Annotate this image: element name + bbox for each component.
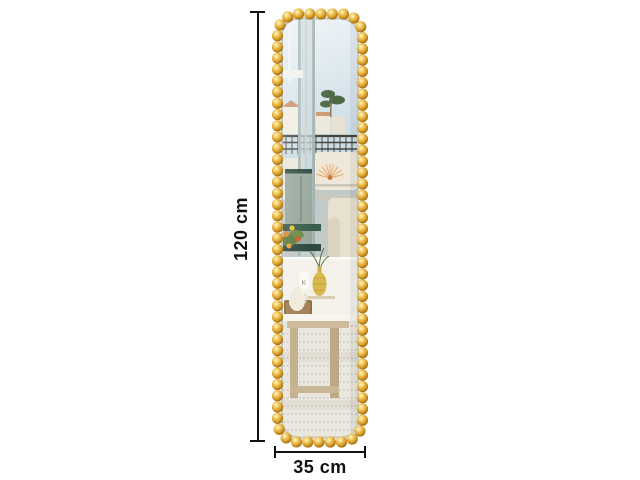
frame-bead: [357, 178, 368, 189]
frame-bead: [347, 433, 358, 444]
frame-bead: [272, 401, 283, 412]
frame-bead: [357, 392, 368, 403]
frame-bead: [272, 368, 283, 379]
frame-bead: [272, 266, 283, 277]
frame-bead: [272, 176, 283, 187]
frame-bead: [272, 154, 283, 165]
height-dimension-tick-top: [250, 11, 265, 13]
frame-bead: [272, 98, 283, 109]
frame-bead: [357, 302, 368, 313]
frame-bead: [272, 300, 283, 311]
frame-bead: [357, 77, 368, 88]
frame-bead: [272, 30, 283, 41]
frame-bead: [272, 86, 283, 97]
frame-bead: [357, 358, 368, 369]
frame-bead: [357, 190, 368, 201]
frame-bead: [274, 424, 285, 435]
frame-bead: [272, 233, 283, 244]
height-dimension-label: 120 cm: [230, 184, 252, 274]
frame-bead: [272, 188, 283, 199]
frame-bead: [272, 278, 283, 289]
frame-bead: [357, 100, 368, 111]
height-dimension-tick-bottom: [250, 440, 265, 442]
frame-bead: [357, 156, 368, 167]
frame-bead: [357, 336, 368, 347]
frame-bead: [272, 356, 283, 367]
frame-bead: [357, 347, 368, 358]
frame-bead: [272, 345, 283, 356]
frame-bead: [272, 334, 283, 345]
frame-bead: [272, 210, 283, 221]
frame-bead: [357, 313, 368, 324]
frame-bead: [281, 432, 292, 443]
frame-bead: [357, 133, 368, 144]
frame-bead: [338, 8, 349, 19]
frame-bead: [357, 111, 368, 122]
width-dimension-label: 35 cm: [275, 457, 365, 477]
frame-bead: [272, 165, 283, 176]
frame-bead: [272, 41, 283, 52]
frame-bead: [327, 8, 338, 19]
frame-bead: [293, 8, 304, 19]
frame-bead: [325, 436, 336, 447]
frame-bead: [315, 8, 326, 19]
frame-bead: [272, 244, 283, 255]
frame-bead: [357, 122, 368, 133]
frame-bead: [272, 64, 283, 75]
frame-bead: [357, 235, 368, 246]
frame-bead: [357, 66, 368, 77]
frame-bead: [357, 201, 368, 212]
frame-bead: [357, 55, 368, 66]
frame-bead: [357, 212, 368, 223]
frame-bead: [348, 12, 359, 23]
frame-bead: [357, 32, 368, 43]
frame-bead: [272, 379, 283, 390]
frame-bead: [272, 143, 283, 154]
frame-bead: [357, 291, 368, 302]
frame-bead: [291, 436, 302, 447]
frame-bead: [272, 109, 283, 120]
frame-bead: [357, 415, 368, 426]
frame-bead: [357, 257, 368, 268]
mirror-reflection: K: [279, 20, 357, 438]
frame-bead: [272, 255, 283, 266]
frame-bead: [357, 145, 368, 156]
frame-bead: [357, 246, 368, 257]
frame-bead: [272, 311, 283, 322]
frame-bead: [357, 88, 368, 99]
beaded-mirror: K: [270, 8, 370, 448]
frame-bead: [272, 413, 283, 424]
frame-bead: [272, 289, 283, 300]
frame-bead: [357, 381, 368, 392]
frame-bead: [313, 436, 324, 447]
reflection-sheen: [283, 20, 357, 437]
frame-bead: [357, 403, 368, 414]
frame-bead: [357, 43, 368, 54]
frame-bead: [272, 221, 283, 232]
frame-bead: [304, 8, 315, 19]
width-dimension-line: [274, 451, 366, 453]
frame-bead: [357, 167, 368, 178]
product-dimension-figure: 120 cm: [0, 0, 640, 480]
frame-bead: [272, 131, 283, 142]
frame-bead: [357, 370, 368, 381]
frame-bead: [282, 11, 293, 22]
frame-bead: [355, 21, 366, 32]
frame-bead: [272, 323, 283, 334]
frame-bead: [302, 436, 313, 447]
frame-bead: [357, 325, 368, 336]
frame-bead: [272, 53, 283, 64]
frame-bead: [272, 75, 283, 86]
frame-bead: [357, 280, 368, 291]
frame-bead: [357, 223, 368, 234]
height-dimension-line: [257, 12, 259, 442]
frame-bead: [272, 120, 283, 131]
frame-bead: [272, 199, 283, 210]
frame-bead: [336, 436, 347, 447]
frame-bead: [357, 268, 368, 279]
frame-bead: [272, 390, 283, 401]
